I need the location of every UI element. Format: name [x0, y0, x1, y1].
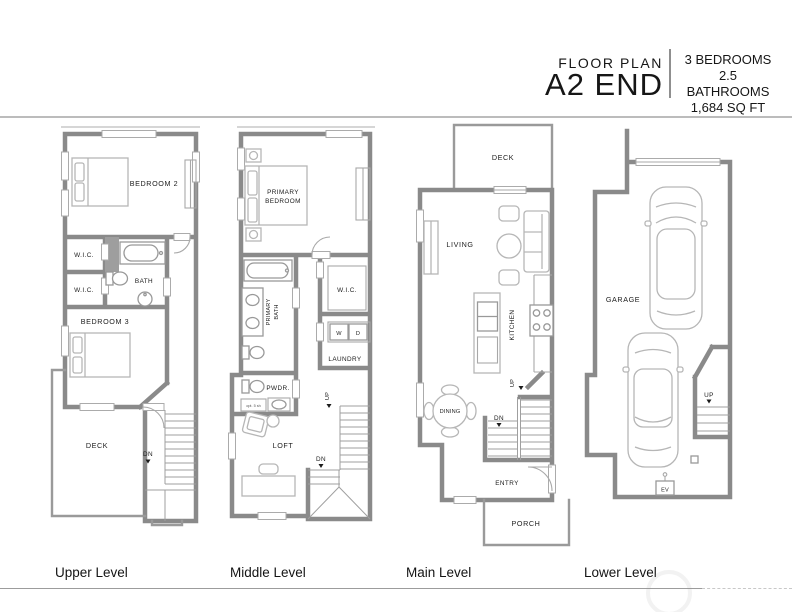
wic-label-b: W.I.C.	[74, 287, 94, 294]
caption-middle-level: Middle Level	[230, 565, 306, 580]
caption-main-level: Main Level	[406, 565, 471, 580]
main-dn-arrow-icon	[497, 423, 502, 427]
primary-bath-label-1: PRIMARY	[266, 299, 272, 326]
garage-label: GARAGE	[606, 295, 640, 304]
caption-lower-level: Lower Level	[584, 565, 657, 580]
header-divider	[669, 49, 671, 98]
upper-level-plan: BEDROOM 2 W.I.C. W.I.C. BATH BEDROOM 3 D…	[40, 118, 220, 565]
footer-rule	[0, 588, 702, 589]
suv-car	[645, 187, 707, 329]
main-deck-label: DECK	[492, 153, 514, 162]
middle-dn-label: DN	[316, 456, 326, 463]
lower-level-plan: GARAGE UP EV	[578, 115, 764, 565]
primary-bedroom-label-2: BEDROOM	[265, 198, 301, 205]
lower-stairs	[697, 407, 730, 431]
living-label: LIVING	[446, 240, 473, 249]
plan-name: A2 END	[410, 67, 663, 103]
floor-plan-sheet: FLOOR PLAN A2 END 3 BEDROOMS 2.5 BATHROO…	[0, 0, 792, 612]
primary-bath-label-2: BATH	[274, 304, 280, 319]
plan-specs: 3 BEDROOMS 2.5 BATHROOMS 1,684 SQ FT	[676, 52, 780, 116]
upper-deck-label: DECK	[86, 441, 108, 450]
dryer-label: D	[356, 331, 360, 337]
bedroom2-label: BEDROOM 2	[130, 179, 179, 188]
loft-furniture	[242, 411, 295, 496]
primary-bedroom-label-1: PRIMARY	[267, 189, 299, 196]
main-dn-label: DN	[494, 415, 504, 422]
washer-dryer	[328, 322, 370, 342]
powder-label: PWDR.	[266, 385, 289, 392]
entry-label: ENTRY	[495, 480, 519, 487]
middle-dn-arrow-icon	[319, 464, 324, 468]
bedroom3-bed	[70, 333, 130, 377]
sedan-car	[623, 333, 683, 467]
shelf-note-label: opt. 5 sh	[246, 404, 261, 408]
living-furniture	[424, 206, 549, 285]
lower-up-label: UP	[704, 392, 714, 399]
dining-label: DINING	[440, 409, 461, 415]
spec-sqft: 1,684 SQ FT	[676, 100, 780, 116]
spec-bathrooms: 2.5 BATHROOMS	[676, 68, 780, 100]
main-up-label: UP	[510, 379, 516, 387]
main-level-plan: DECK LIVING KITCHEN DINING UP DN ENTRY P…	[402, 115, 574, 565]
bath-sink	[138, 292, 152, 306]
bedroom3-label: BEDROOM 3	[81, 317, 130, 326]
bathtub	[120, 242, 165, 264]
loft-label: LOFT	[273, 441, 294, 450]
upper-dn-label: DN	[143, 451, 153, 458]
middle-level-plan: PRIMARY BEDROOM PRIMARY BATH W.I.C. W D …	[228, 118, 398, 565]
watermark-circle	[646, 570, 692, 612]
bedroom2-bed	[72, 158, 128, 206]
spec-bedrooms: 3 BEDROOMS	[676, 52, 780, 68]
toilet	[106, 272, 128, 285]
upper-stairs	[145, 410, 196, 521]
bath-label: BATH	[135, 278, 153, 285]
lower-up-arrow-icon	[707, 400, 712, 404]
porch-label: PORCH	[512, 519, 541, 528]
main-up-arrow-icon	[519, 386, 524, 390]
middle-wic-label: W.I.C.	[337, 287, 357, 294]
kitchen-label: KITCHEN	[509, 310, 516, 341]
footer-rule-faded	[702, 588, 792, 589]
middle-up-arrow-icon	[327, 404, 332, 408]
ev-label: EV	[661, 488, 669, 494]
wic-label-a: W.I.C.	[74, 252, 94, 259]
middle-up-label: UP	[325, 392, 331, 400]
laundry-label: LAUNDRY	[328, 356, 362, 363]
caption-upper-level: Upper Level	[55, 565, 128, 580]
washer-label: W	[336, 331, 342, 337]
main-stairs	[488, 397, 552, 460]
